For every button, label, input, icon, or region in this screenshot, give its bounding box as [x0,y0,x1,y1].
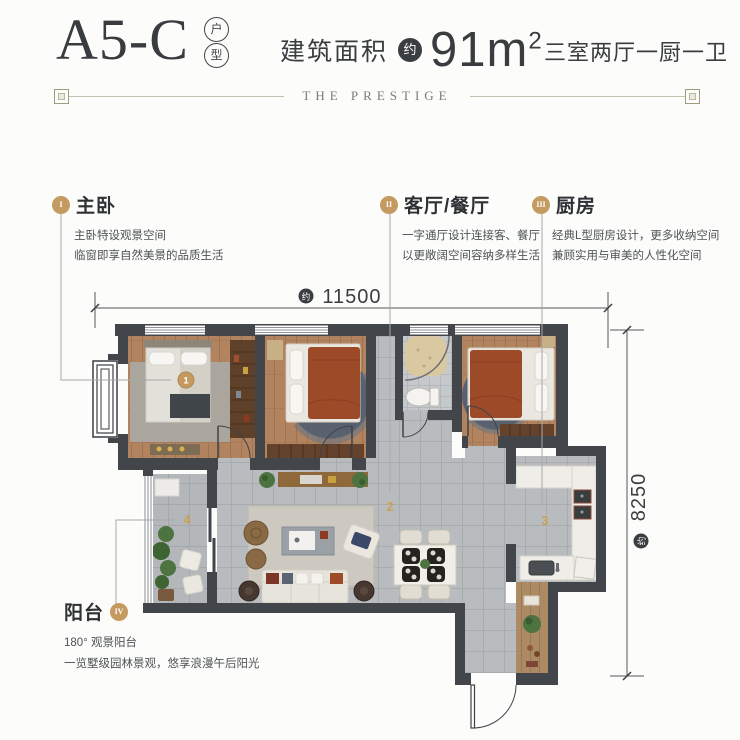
room-marker-2: 2 [386,499,393,514]
entry-door [471,685,516,728]
dimension-height: 8250 约 [610,326,650,680]
dimension-height-value: 8250 [628,473,650,522]
plant-icon [158,526,174,542]
master-bedroom [130,340,255,455]
fridge [574,557,596,579]
shower-mat [405,336,447,376]
plant-icon [155,575,169,589]
room-marker-4: 4 [183,512,191,527]
plant-icon [160,560,176,576]
balcony-window [143,476,153,603]
plant-icon [523,615,541,633]
svg-text:约: 约 [637,537,647,546]
bay-window [92,360,118,438]
plant-icon [152,542,170,560]
wardrobe [500,424,554,436]
window [410,326,448,335]
flower-pot [158,589,174,601]
sofa [262,570,348,603]
window [145,326,205,335]
wardrobe [230,340,255,438]
window [455,326,540,335]
floor-plan: 约 11500 8250 约 1 2 3 [0,0,740,740]
pouf [246,549,266,569]
floorplan-page: A5-C 户 型 建筑面积 约 91m2 三室两厅一厨一卫 THE PRESTI… [0,0,740,740]
pouf [244,521,268,545]
sink [529,561,554,575]
svg-text:1: 1 [183,376,189,387]
dimension-width-value: 11500 [322,286,381,308]
svg-text:约: 约 [302,292,311,302]
toilet [406,388,432,406]
room-marker-1: 1 [178,372,194,388]
room-marker-3: 3 [541,513,548,528]
centerpiece-plant-icon [420,559,430,569]
window [255,326,328,335]
